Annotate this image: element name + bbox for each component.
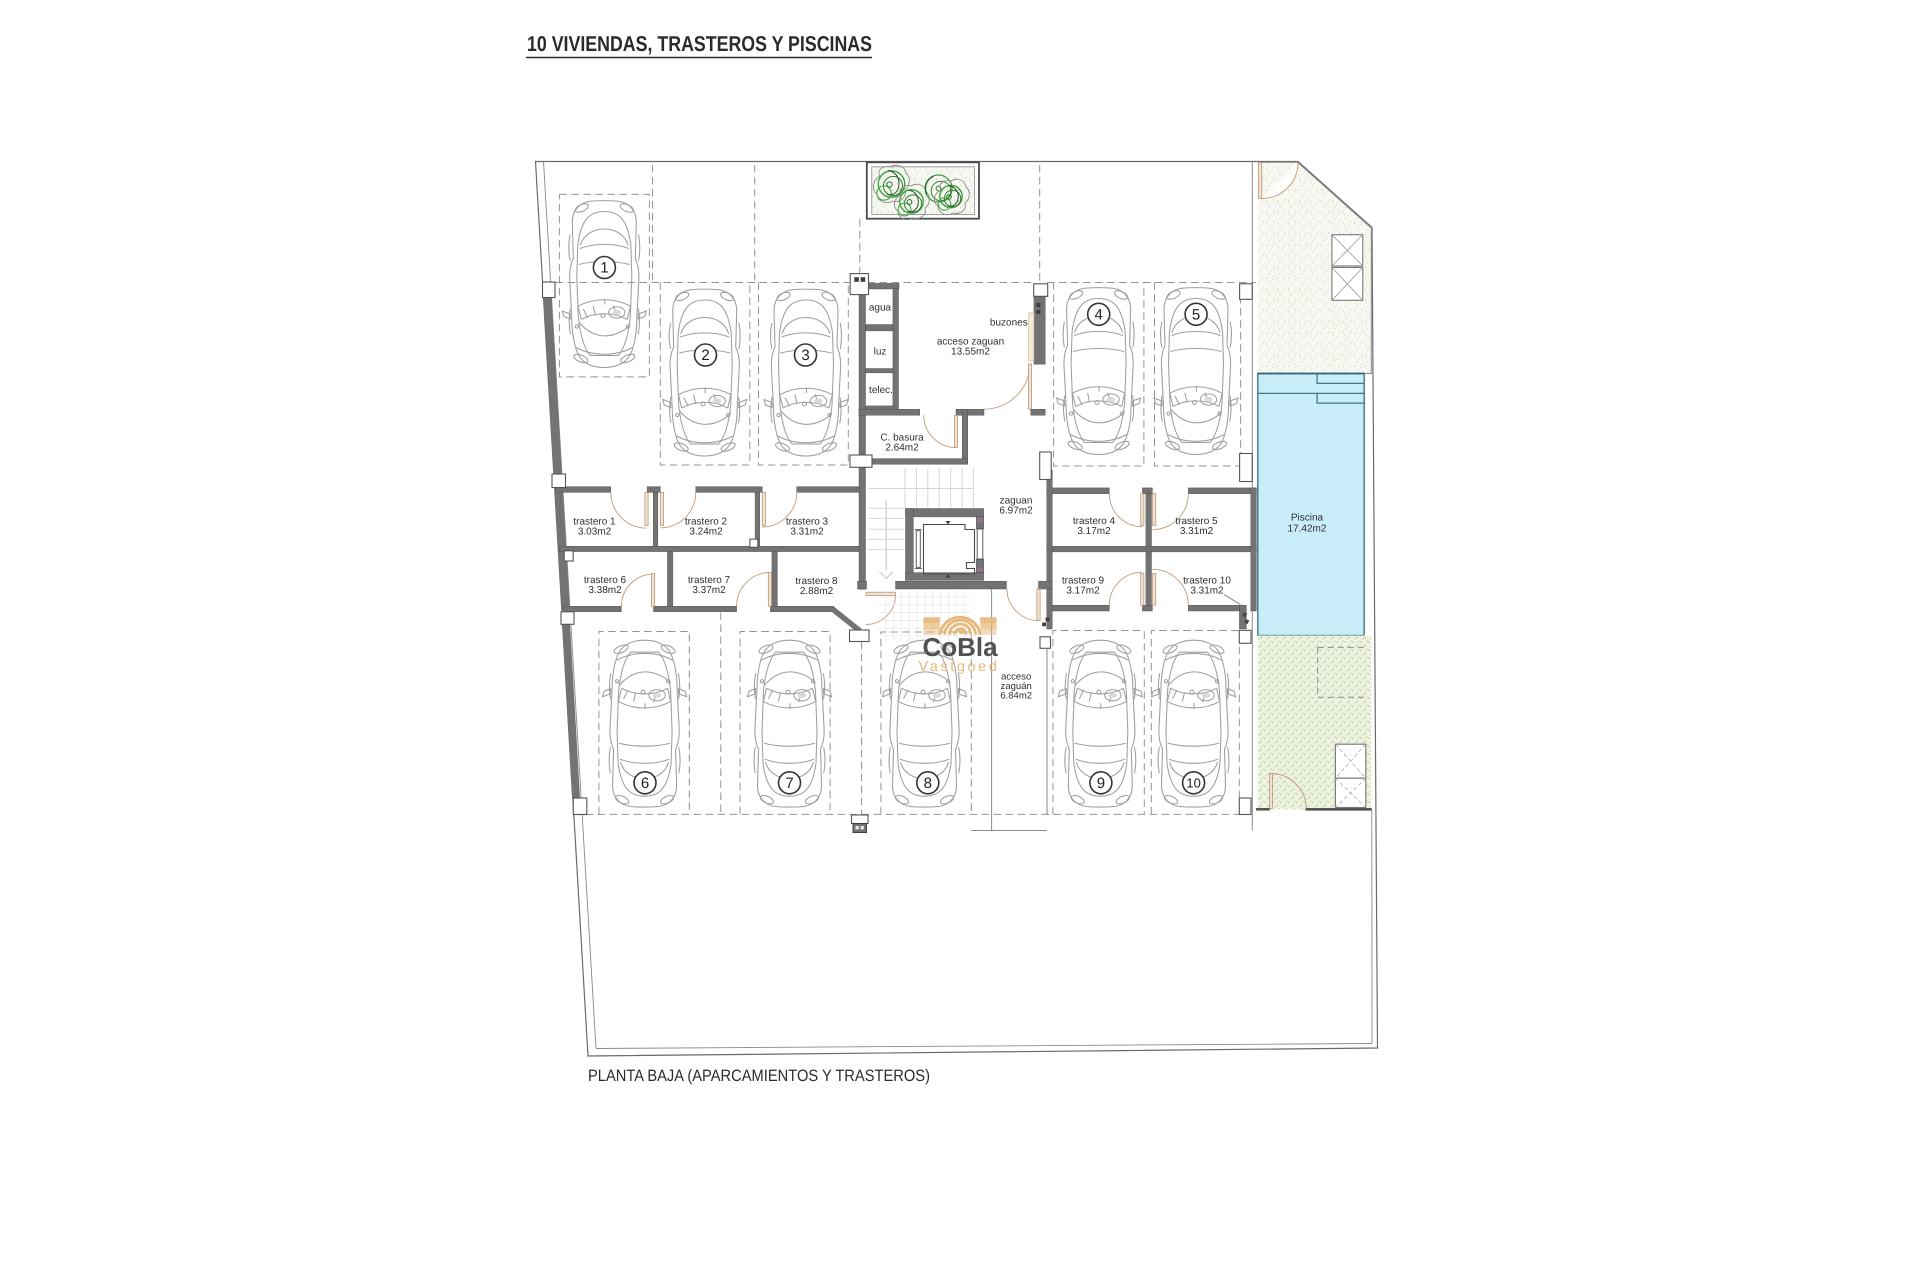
svg-text:3.17m2: 3.17m2 — [1066, 586, 1100, 597]
svg-text:2: 2 — [701, 347, 709, 364]
svg-text:luz: luz — [874, 346, 887, 357]
svg-text:1: 1 — [600, 260, 608, 277]
svg-text:Piscina: Piscina — [1291, 513, 1324, 524]
svg-text:3.17m2: 3.17m2 — [1077, 526, 1111, 537]
svg-text:8: 8 — [924, 775, 932, 792]
svg-text:PLANTA BAJA (APARCAMIENTOS Y T: PLANTA BAJA (APARCAMIENTOS Y TRASTEROS) — [588, 1067, 930, 1085]
svg-text:9: 9 — [1097, 775, 1105, 792]
svg-text:4: 4 — [1095, 306, 1103, 323]
svg-text:3: 3 — [801, 347, 809, 364]
svg-text:3.37m2: 3.37m2 — [692, 585, 726, 596]
svg-text:13.55m2: 13.55m2 — [951, 347, 990, 358]
svg-text:telec.: telec. — [869, 385, 893, 396]
svg-text:10 VIVIENDAS, TRASTEROS Y PISC: 10 VIVIENDAS, TRASTEROS Y PISCINAS — [527, 32, 872, 56]
svg-text:buzones: buzones — [990, 318, 1028, 329]
svg-text:5: 5 — [1192, 306, 1200, 323]
svg-text:2.88m2: 2.88m2 — [800, 586, 834, 597]
svg-text:3.31m2: 3.31m2 — [1190, 586, 1224, 597]
svg-text:7: 7 — [785, 775, 793, 792]
svg-text:10: 10 — [1186, 775, 1200, 790]
svg-text:17.42m2: 17.42m2 — [1288, 524, 1327, 535]
svg-text:CoBla: CoBla — [922, 632, 998, 662]
svg-text:3.24m2: 3.24m2 — [689, 527, 723, 538]
svg-text:6.84m2: 6.84m2 — [1000, 691, 1032, 702]
svg-text:agua: agua — [869, 303, 892, 314]
svg-text:3.38m2: 3.38m2 — [588, 585, 622, 596]
svg-text:3.31m2: 3.31m2 — [1180, 526, 1214, 537]
svg-text:6.97m2: 6.97m2 — [999, 506, 1033, 517]
svg-text:Vastgoed: Vastgoed — [919, 659, 1000, 675]
svg-text:3.31m2: 3.31m2 — [790, 527, 824, 538]
svg-text:2.64m2: 2.64m2 — [885, 442, 919, 453]
svg-text:6: 6 — [641, 775, 649, 792]
svg-text:3.03m2: 3.03m2 — [578, 527, 612, 538]
